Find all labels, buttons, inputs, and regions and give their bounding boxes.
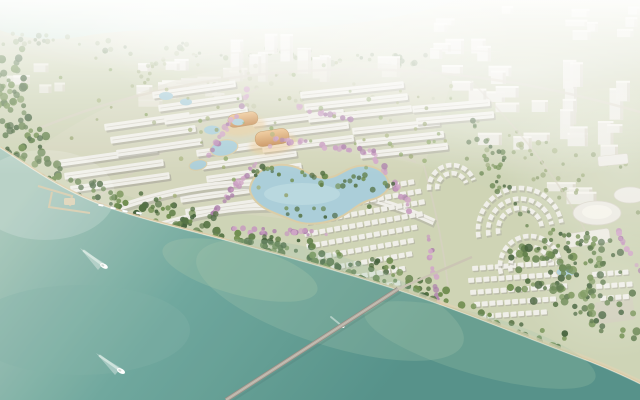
fog-overlay [0, 0, 640, 400]
rendering-stage [0, 0, 640, 400]
aerial-masterplan-rendering [0, 0, 640, 400]
warm-tint [0, 0, 640, 400]
